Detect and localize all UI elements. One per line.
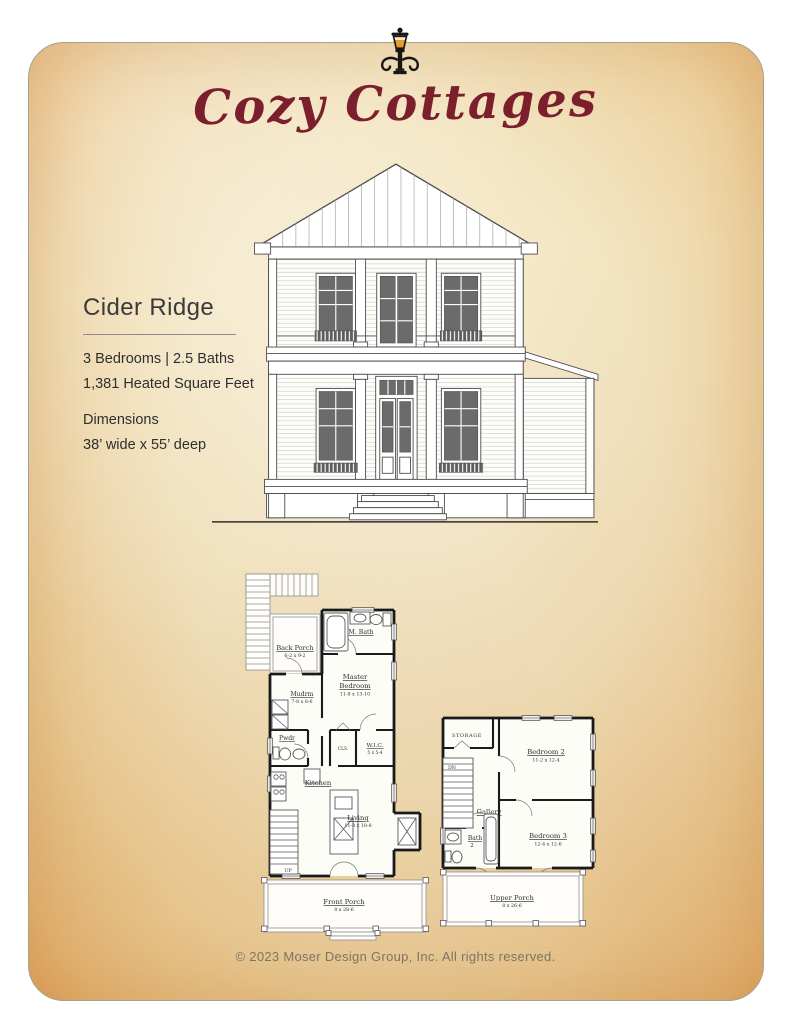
footer-copyright: © 2023 Moser Design Group, Inc. All righ… xyxy=(0,949,791,964)
fireplace xyxy=(398,818,416,845)
room-dims-upper-porch: 8 x 26-6 xyxy=(502,903,522,909)
room-label-kitchen: Kitchen xyxy=(305,779,332,787)
room-dims-wic: 5 x 5-4 xyxy=(367,751,382,756)
room-dims-bedroom2: 11-2 x 12-4 xyxy=(532,758,559,764)
room-label-bedroom3: Bedroom 3 xyxy=(529,832,567,840)
porch-steps xyxy=(326,931,380,941)
room-label-back-porch: Back Porch xyxy=(276,644,313,652)
upper-right-window xyxy=(441,273,480,334)
room-label-bedroom2: Bedroom 2 xyxy=(527,748,565,756)
room-dims-master: 11-8 x 13-10 xyxy=(340,692,370,698)
brochure-page: Cozy Cottages Cider Ridge 3 Bedrooms | 2… xyxy=(0,0,791,1024)
first-floor-plan: Back Porch 6-2 x 9-2 xyxy=(242,566,442,946)
room-label-wic: W.I.C. xyxy=(367,743,384,749)
lower-left-window xyxy=(316,388,355,463)
room-label-pwdr: Pwdr xyxy=(279,735,295,742)
room-label-living: Living xyxy=(347,814,369,822)
back-porch: Back Porch 6-2 x 9-2 xyxy=(270,614,320,674)
lower-right-window xyxy=(441,388,480,463)
room-label-master-1: Master xyxy=(343,673,368,681)
stairs-dn-label: DN xyxy=(448,765,456,771)
room-label-storage: STORAGE xyxy=(452,733,482,739)
room-label-master-2: Bedroom xyxy=(339,682,371,690)
front-porch: Front Porch 8 x 28-6 xyxy=(262,878,429,941)
street-lamp-icon xyxy=(377,27,423,79)
room-dims-mudrm: 7-8 x 8-6 xyxy=(291,699,312,705)
room-dims-bedroom3: 12-4 x 12-6 xyxy=(534,842,561,848)
entry-door xyxy=(376,376,417,479)
stairs-up-label: UP xyxy=(284,868,292,874)
room-dims-front-porch: 8 x 28-6 xyxy=(334,907,354,913)
upper-left-window xyxy=(316,273,355,334)
side-wing xyxy=(519,350,598,518)
upper-porch: Upper Porch 8 x 26-6 xyxy=(441,870,586,927)
interior-stairs-up: UP xyxy=(270,810,298,874)
balcony-door xyxy=(377,273,416,347)
front-steps xyxy=(349,496,446,520)
room-label-upper-porch: Upper Porch xyxy=(490,894,534,902)
room-label-m-bath: M. Bath xyxy=(349,629,374,636)
room-label-bath2-2: 2 xyxy=(470,843,473,849)
elevation-drawing xyxy=(210,158,600,530)
room-dims-living: 11-8 x 18-8 xyxy=(344,823,371,829)
room-label-bath2-1: Bath xyxy=(468,835,482,842)
second-floor-plan: STORAGE Bedroom 2 11-2 x 12-4 DN Gallery… xyxy=(436,710,600,942)
room-label-cls: CLS. xyxy=(338,747,349,752)
interior-stairs-down: DN xyxy=(443,758,473,828)
room-label-mudrm: Mudrm xyxy=(290,691,313,698)
room-label-front-porch: Front Porch xyxy=(323,898,365,906)
